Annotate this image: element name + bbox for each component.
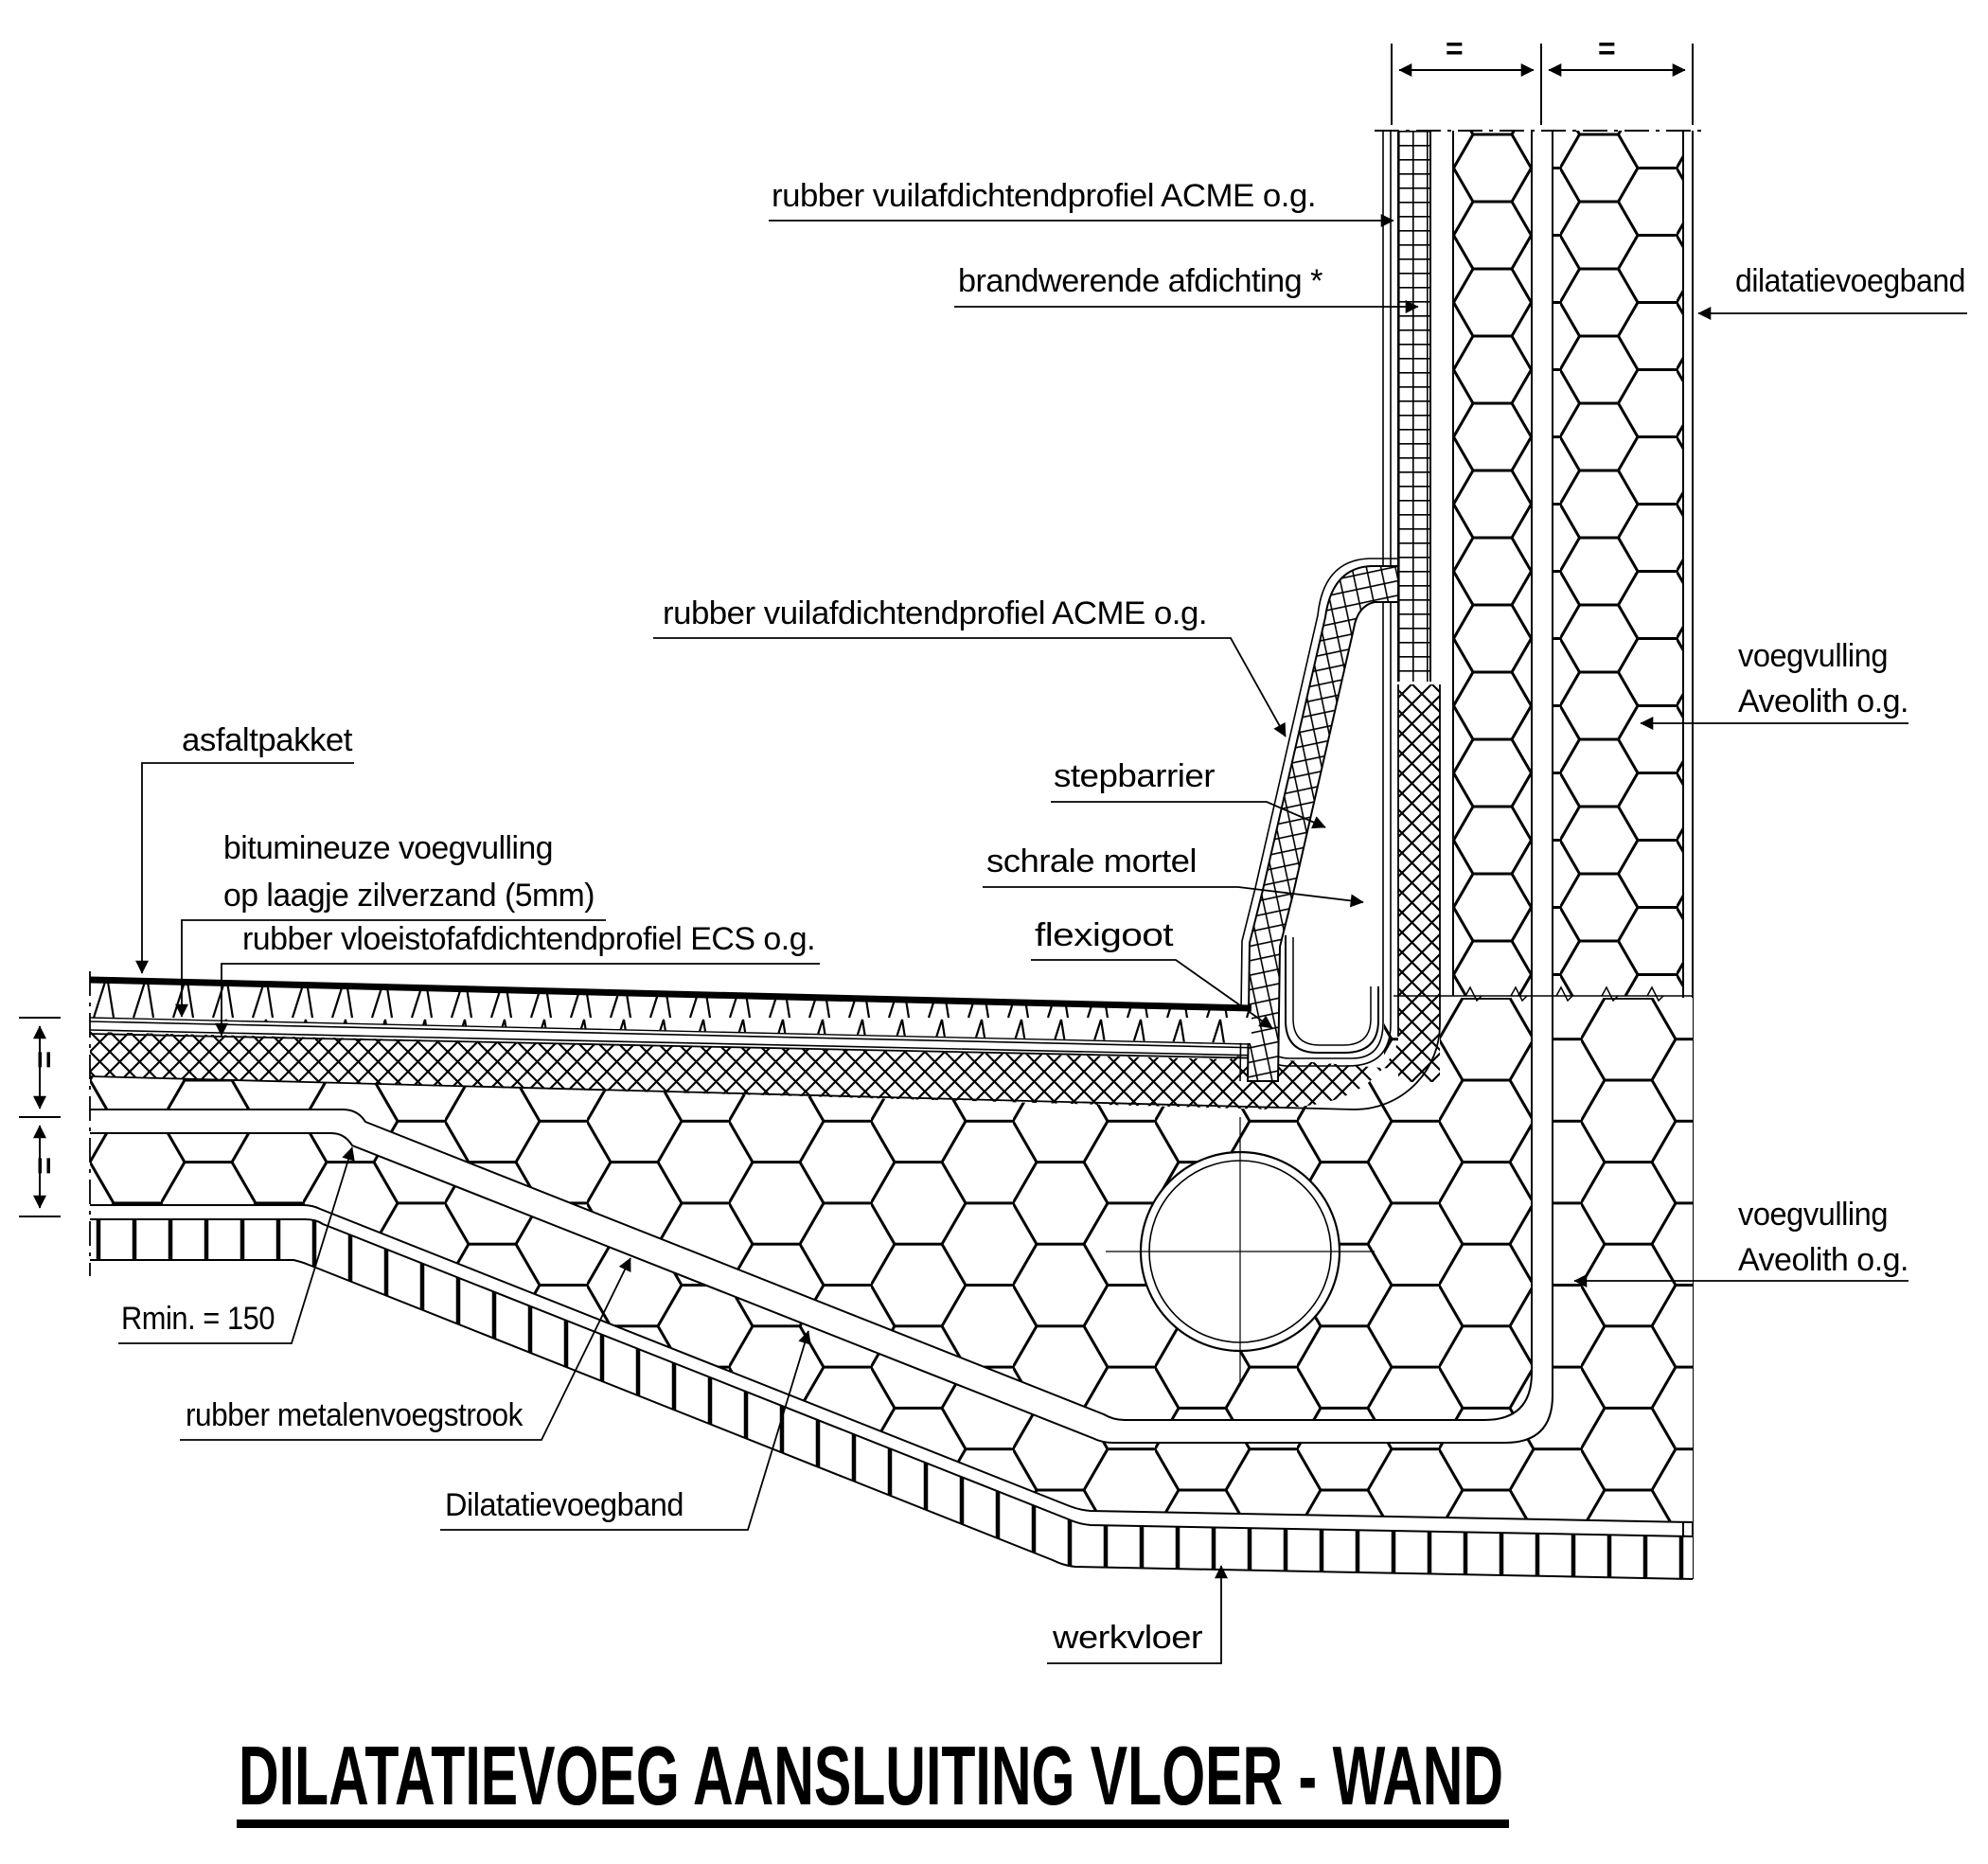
- label-rubber-profile-top: rubber vuilafdichtendprofiel ACME o.g.: [772, 178, 1316, 214]
- label-work-floor: werkvloer: [1052, 1620, 1202, 1656]
- left-dimension: [19, 1018, 61, 1216]
- equal-mark-top-right: =: [1598, 31, 1616, 65]
- drawing-sheet: = = = = rubber vuilafdichtendprofiel ACM…: [0, 0, 1988, 1859]
- label-rubber-profile-mid: rubber vuilafdichtendprofiel ACME o.g.: [663, 595, 1207, 631]
- wall-joint-filler-strip-2: [1553, 131, 1683, 996]
- label-rubber-metal-strip: rubber metalenvoegstrook: [186, 1397, 524, 1433]
- title-underline: [237, 1820, 1509, 1828]
- label-flexi-gutter: flexigoot: [1035, 917, 1174, 953]
- flexi-gutter-shape: [1284, 933, 1380, 1055]
- label-stepbarrier: stepbarrier: [1054, 758, 1215, 794]
- label-liquid-seal: rubber vloeistofafdichtendprofiel ECS o.…: [242, 921, 815, 957]
- equal-mark-left-lower: =: [27, 1157, 62, 1175]
- drawing-title: DILATATIEVOEG AANSLUITING VLOER - WAND: [239, 1729, 1503, 1822]
- label-joint-fill-wall-1: voegvulling: [1738, 638, 1888, 674]
- label-dilatation-band-wall: dilatatievoegband: [1735, 263, 1965, 299]
- wall-rubber-profile-strip: [1398, 131, 1430, 682]
- label-joint-fill-floor-2: Aveolith o.g.: [1738, 1242, 1908, 1278]
- label-asphalt: asfaltpakket: [182, 722, 353, 758]
- label-joint-fill-wall-2: Aveolith o.g.: [1738, 683, 1908, 719]
- top-dimension: [1392, 44, 1693, 125]
- equal-mark-left-upper: =: [27, 1051, 62, 1069]
- label-fire-seal: brandwerende afdichting *: [958, 263, 1322, 299]
- equal-mark-top-left: =: [1446, 31, 1464, 65]
- lean-mortar-column: [1398, 684, 1440, 1082]
- label-joint-fill-floor-1: voegvulling: [1738, 1197, 1888, 1233]
- technical-drawing: = = = = rubber vuilafdichtendprofiel ACM…: [0, 0, 1988, 1859]
- label-bitumen-1: bitumineuze voegvulling: [223, 830, 553, 866]
- label-lean-mortar: schrale mortel: [986, 843, 1197, 879]
- label-dilatation-band-floor: Dilatatievoegband: [445, 1487, 683, 1523]
- label-bitumen-2: op laagje zilverzand (5mm): [223, 878, 595, 914]
- label-min-radius: Rmin. = 150: [121, 1301, 275, 1337]
- wall-joint-filler-strip-1: [1453, 131, 1532, 996]
